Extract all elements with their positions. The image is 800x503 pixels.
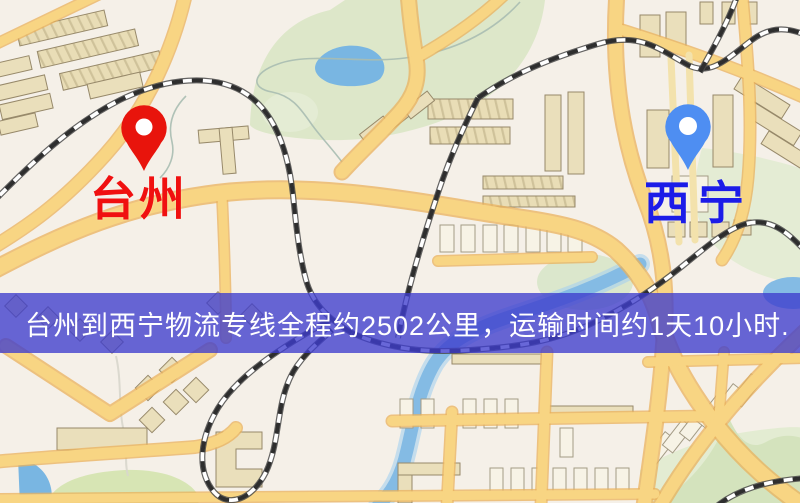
map-graphic	[0, 0, 800, 503]
origin-label: 台州	[90, 177, 188, 223]
origin-pin-hole	[136, 119, 153, 136]
route-info-banner: 台州到西宁物流专线全程约2502公里，运输时间约1天10小时.	[0, 293, 800, 353]
destination-label: 西宁	[644, 181, 752, 227]
logistics-route-map: 台州 西宁 台州到西宁物流专线全程约2502公里，运输时间约1天10小时.	[0, 0, 800, 503]
route-info-text: 台州到西宁物流专线全程约2502公里，运输时间约1天10小时.	[0, 304, 790, 343]
destination-pin-hole	[679, 117, 697, 135]
